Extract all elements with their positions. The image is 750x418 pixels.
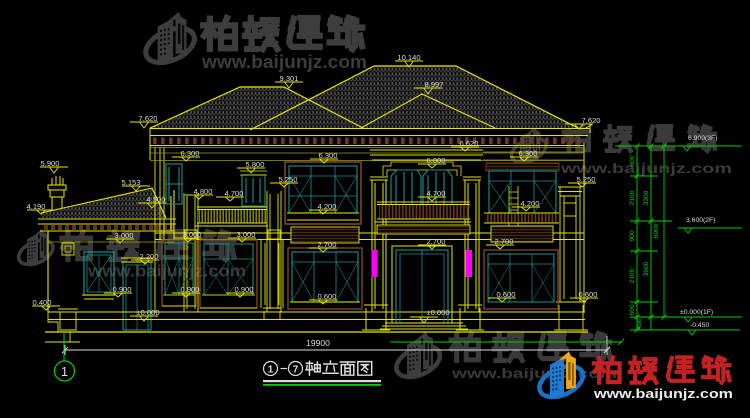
- svg-text:4.200: 4.200: [520, 199, 539, 208]
- svg-text:2.700: 2.700: [494, 237, 513, 246]
- svg-text:www.baijunjz.com: www.baijunjz.com: [560, 161, 732, 176]
- svg-text:0.400: 0.400: [32, 298, 51, 307]
- svg-text:600: 600: [629, 155, 636, 166]
- svg-text:3300: 3300: [643, 190, 650, 205]
- svg-text:6.620: 6.620: [459, 139, 478, 148]
- svg-text:5.250: 5.250: [576, 175, 595, 184]
- svg-text:900: 900: [629, 230, 636, 241]
- svg-text:3.600(2F): 3.600(2F): [686, 217, 715, 224]
- svg-text:5.250: 5.250: [278, 175, 297, 184]
- svg-text:4.500: 4.500: [146, 195, 165, 204]
- svg-text:3600: 3600: [643, 261, 650, 276]
- svg-text:10.140: 10.140: [397, 53, 420, 62]
- svg-text:6900: 6900: [653, 223, 660, 238]
- svg-text:±0.000: ±0.000: [136, 308, 159, 317]
- svg-text:4.200: 4.200: [317, 202, 336, 211]
- svg-text:3.000: 3.000: [114, 231, 133, 240]
- svg-text:450: 450: [636, 318, 643, 329]
- svg-text:www.baijunjz.com: www.baijunjz.com: [451, 365, 617, 381]
- svg-text:0.900: 0.900: [112, 285, 131, 294]
- svg-text:3.000: 3.000: [236, 230, 255, 239]
- svg-text:0.600: 0.600: [578, 290, 597, 299]
- svg-text:3.000: 3.000: [182, 230, 201, 239]
- svg-text:5.800: 5.800: [245, 160, 264, 169]
- svg-text:2.700: 2.700: [317, 240, 336, 249]
- svg-text:5.153: 5.153: [121, 178, 140, 187]
- svg-text:2.700: 2.700: [426, 237, 445, 246]
- svg-text:6.300: 6.300: [180, 149, 199, 158]
- svg-text:2100: 2100: [629, 268, 636, 283]
- svg-text:6.900(3F): 6.900(3F): [688, 135, 717, 142]
- svg-text:8.997: 8.997: [424, 80, 443, 89]
- svg-text:4.800: 4.800: [193, 187, 212, 196]
- svg-text:0.600: 0.600: [317, 292, 336, 301]
- svg-text:7.620: 7.620: [581, 116, 600, 125]
- svg-text:7.620: 7.620: [138, 114, 157, 123]
- svg-text:5.900: 5.900: [40, 159, 59, 168]
- svg-text:±0.000(1F): ±0.000(1F): [680, 309, 713, 316]
- svg-text:2.200: 2.200: [139, 252, 158, 261]
- svg-text:7: 7: [293, 365, 299, 376]
- svg-text:±0.000: ±0.000: [426, 308, 449, 317]
- svg-text:6.000: 6.000: [426, 156, 445, 165]
- svg-text:4.700: 4.700: [426, 189, 445, 198]
- svg-text:19900: 19900: [306, 338, 330, 348]
- svg-text:www.baijunjz.com: www.baijunjz.com: [593, 387, 733, 401]
- svg-text:4.190: 4.190: [26, 202, 45, 211]
- svg-text:1: 1: [268, 365, 274, 376]
- svg-text:0.900: 0.900: [180, 285, 199, 294]
- svg-text:0.900: 0.900: [234, 285, 253, 294]
- svg-text:2100: 2100: [629, 190, 636, 205]
- svg-text:6.300: 6.300: [318, 151, 337, 160]
- svg-text:0.600: 0.600: [496, 290, 515, 299]
- svg-text:6.300: 6.300: [518, 149, 537, 158]
- svg-text:www.baijunjz.com: www.baijunjz.com: [201, 51, 367, 72]
- svg-text:4.700: 4.700: [224, 189, 243, 198]
- svg-text:600: 600: [629, 304, 636, 315]
- svg-text:1: 1: [61, 364, 68, 379]
- svg-text:-0.450: -0.450: [690, 322, 709, 329]
- svg-text:9.301: 9.301: [279, 74, 298, 83]
